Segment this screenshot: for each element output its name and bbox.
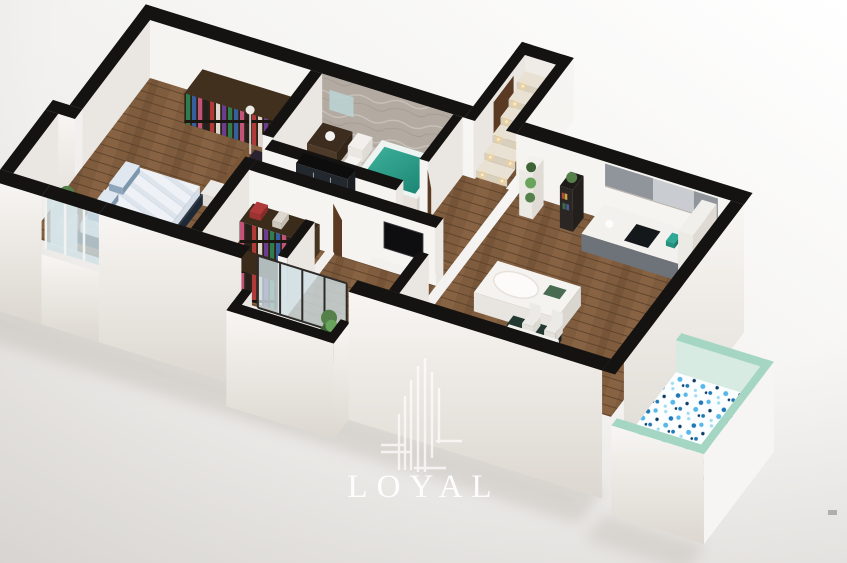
brand-name: LOYAL xyxy=(347,469,500,505)
facade-left-face xyxy=(0,181,42,324)
stair-light xyxy=(509,162,511,164)
stair-light xyxy=(481,174,483,176)
stair-light xyxy=(501,180,503,182)
shelf-plant xyxy=(526,162,536,172)
book xyxy=(566,204,569,211)
shelf-plant xyxy=(525,193,535,203)
wall-bath-entry-face xyxy=(420,159,429,220)
vanity-basin xyxy=(325,131,335,141)
cursor-artifact xyxy=(828,510,837,515)
shelf-plant xyxy=(525,178,536,189)
stair-light xyxy=(514,103,516,105)
stair-light xyxy=(505,121,507,123)
bookshelf-plant xyxy=(566,172,577,183)
stair-light xyxy=(489,156,491,158)
book xyxy=(565,193,568,200)
book xyxy=(562,192,565,199)
floorplan-render: LOYAL xyxy=(0,0,847,563)
book xyxy=(563,203,566,210)
stair-light xyxy=(522,85,524,87)
floor-lamp-head xyxy=(246,106,255,115)
wall-hall-tvroom-end xyxy=(436,218,444,286)
floorplan-screenshot: LOYAL xyxy=(0,0,847,563)
stair-light xyxy=(497,138,499,140)
kitchen-dish xyxy=(605,220,613,228)
